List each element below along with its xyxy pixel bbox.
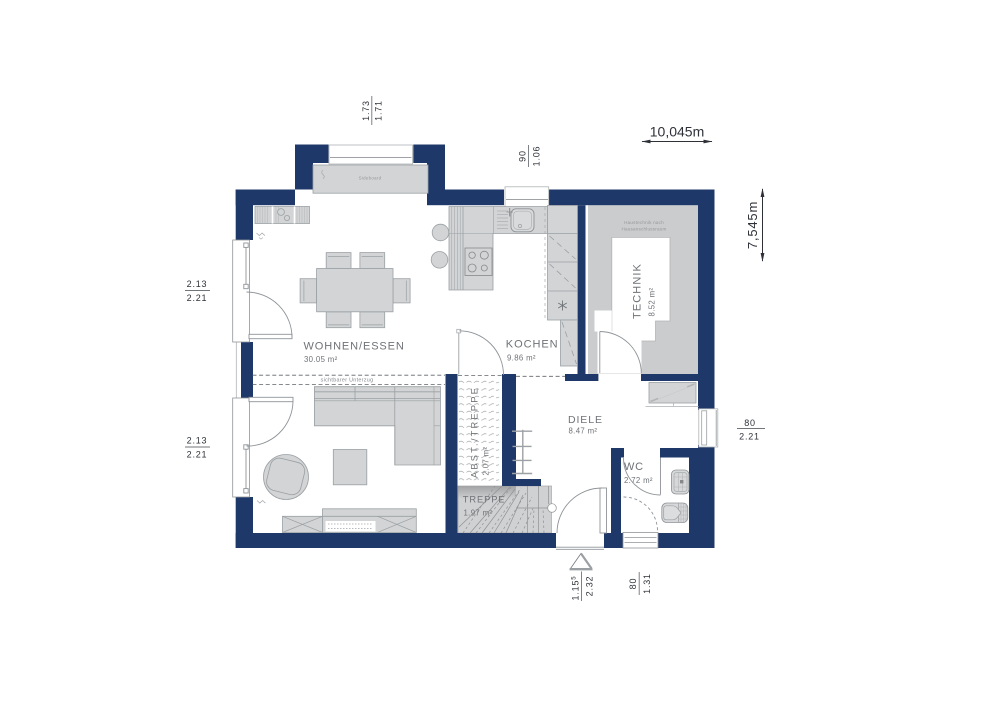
- svg-text:TECHNIK: TECHNIK: [632, 263, 644, 319]
- svg-text:sichtbarer Unterzug: sichtbarer Unterzug: [321, 377, 374, 383]
- svg-text:2.32: 2.32: [585, 576, 595, 597]
- svg-text:10,045m: 10,045m: [650, 123, 704, 139]
- svg-text:1.06: 1.06: [532, 146, 542, 167]
- svg-text:9.86 m²: 9.86 m²: [507, 354, 536, 363]
- svg-text:2.21: 2.21: [187, 450, 208, 460]
- svg-text:8.52 m²: 8.52 m²: [648, 288, 657, 317]
- svg-text:ABST./TREPPE: ABST./TREPPE: [470, 386, 480, 478]
- svg-text:WOHNEN/ESSEN: WOHNEN/ESSEN: [304, 341, 405, 353]
- svg-text:8.47 m²: 8.47 m²: [569, 426, 598, 435]
- svg-text:2.13: 2.13: [187, 279, 208, 289]
- svg-text:1.97 m²: 1.97 m²: [464, 509, 493, 518]
- svg-text:1.71: 1.71: [374, 100, 384, 121]
- svg-text:2.07 m²: 2.07 m²: [482, 447, 491, 476]
- svg-text:2.21: 2.21: [739, 431, 760, 441]
- svg-text:1.31: 1.31: [642, 573, 652, 594]
- svg-text:TREPPE: TREPPE: [463, 495, 506, 505]
- svg-text:2.13: 2.13: [187, 436, 208, 446]
- svg-text:30.05 m²: 30.05 m²: [304, 355, 338, 364]
- svg-text:1.73: 1.73: [361, 100, 371, 121]
- svg-text:WC: WC: [624, 461, 644, 473]
- svg-text:Sideboard: Sideboard: [359, 176, 382, 181]
- svg-text:KOCHEN: KOCHEN: [506, 339, 559, 351]
- svg-text:2.72 m²: 2.72 m²: [624, 476, 653, 485]
- svg-text:Hausanschlussraum: Hausanschlussraum: [621, 227, 666, 232]
- svg-text:2.21: 2.21: [187, 293, 208, 303]
- svg-text:80: 80: [628, 578, 638, 590]
- svg-text:90: 90: [518, 150, 528, 162]
- svg-text:80: 80: [744, 418, 756, 428]
- svg-text:Haustechnik nach: Haustechnik nach: [624, 220, 664, 225]
- svg-text:7,545m: 7,545m: [745, 201, 760, 249]
- svg-text:DIELE: DIELE: [568, 414, 603, 426]
